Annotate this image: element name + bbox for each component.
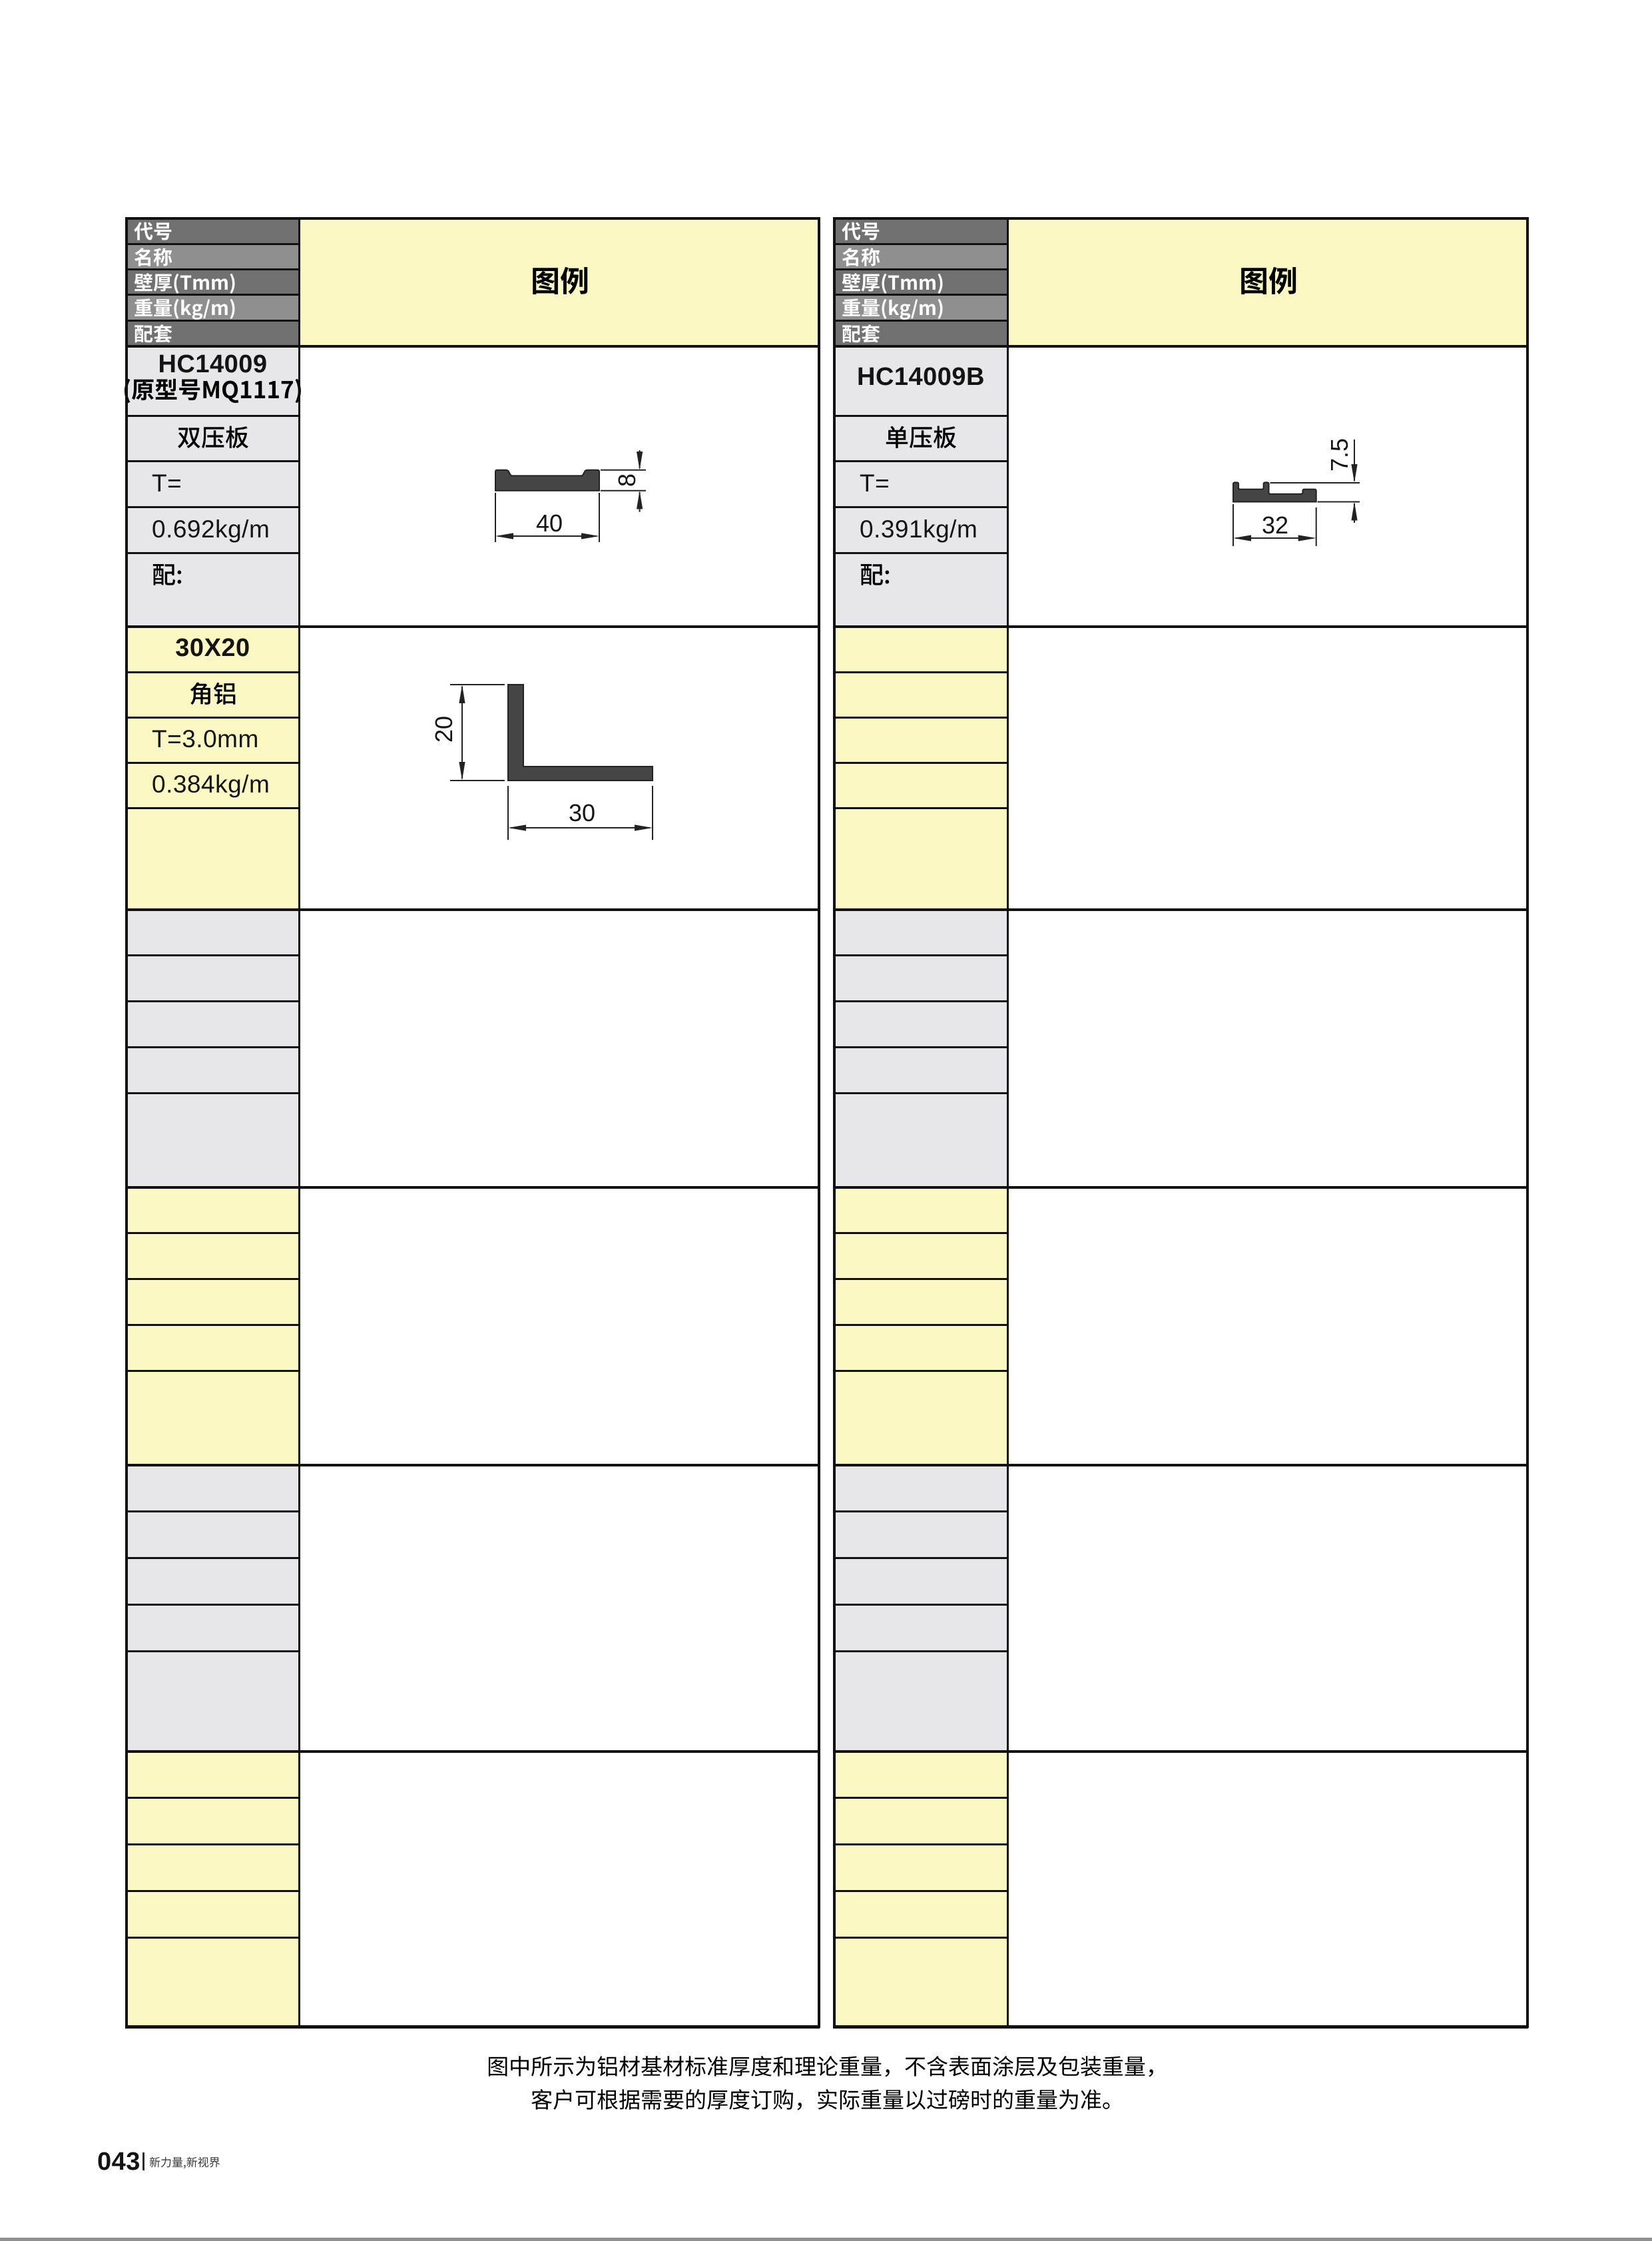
svg-text:20: 20 [430,716,457,743]
svg-text:30: 30 [569,799,595,826]
svg-text:8: 8 [613,474,641,487]
svg-text:40: 40 [536,509,563,537]
svg-text:32: 32 [1262,511,1288,539]
svg-text:7.5: 7.5 [1326,438,1353,472]
